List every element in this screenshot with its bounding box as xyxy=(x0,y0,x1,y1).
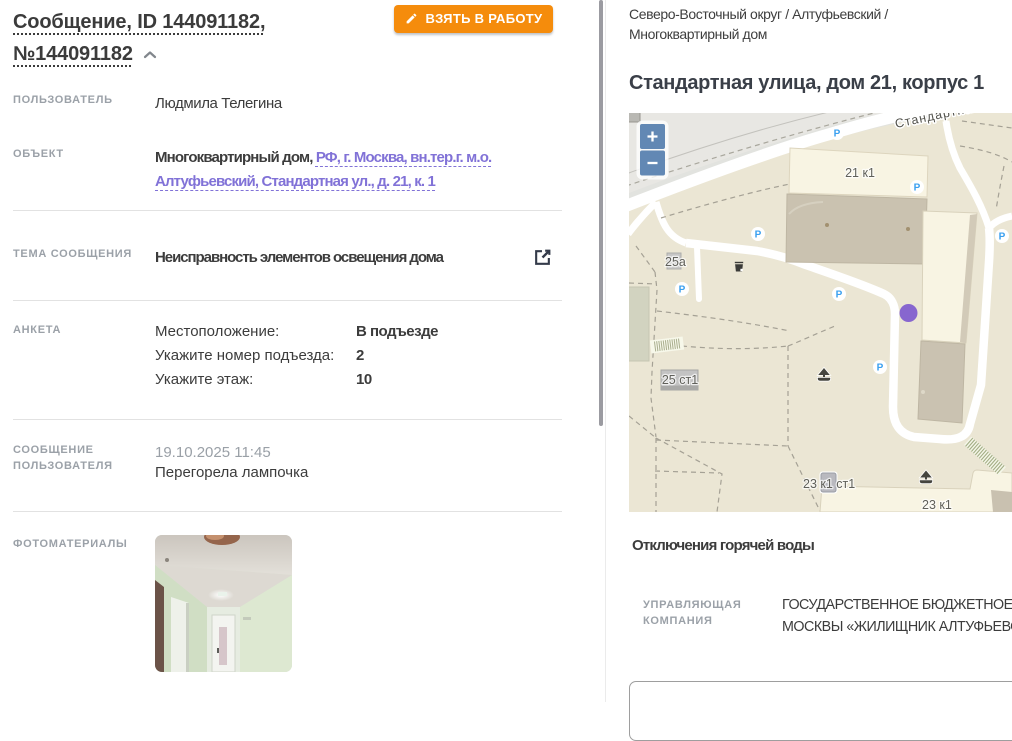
svg-text:P: P xyxy=(914,183,921,194)
svg-text:23 к1: 23 к1 xyxy=(922,498,952,512)
svg-text:25 ст1: 25 ст1 xyxy=(662,373,698,387)
svg-text:P: P xyxy=(755,230,762,241)
svg-text:P: P xyxy=(679,285,686,296)
svg-text:25а: 25а xyxy=(665,255,686,269)
svg-text:23 к1 ст1: 23 к1 ст1 xyxy=(803,477,855,491)
svg-text:P: P xyxy=(836,290,843,301)
svg-text:P: P xyxy=(999,232,1006,243)
svg-text:21 к1: 21 к1 xyxy=(845,166,875,180)
svg-text:P: P xyxy=(834,129,841,140)
svg-text:P: P xyxy=(877,363,884,374)
